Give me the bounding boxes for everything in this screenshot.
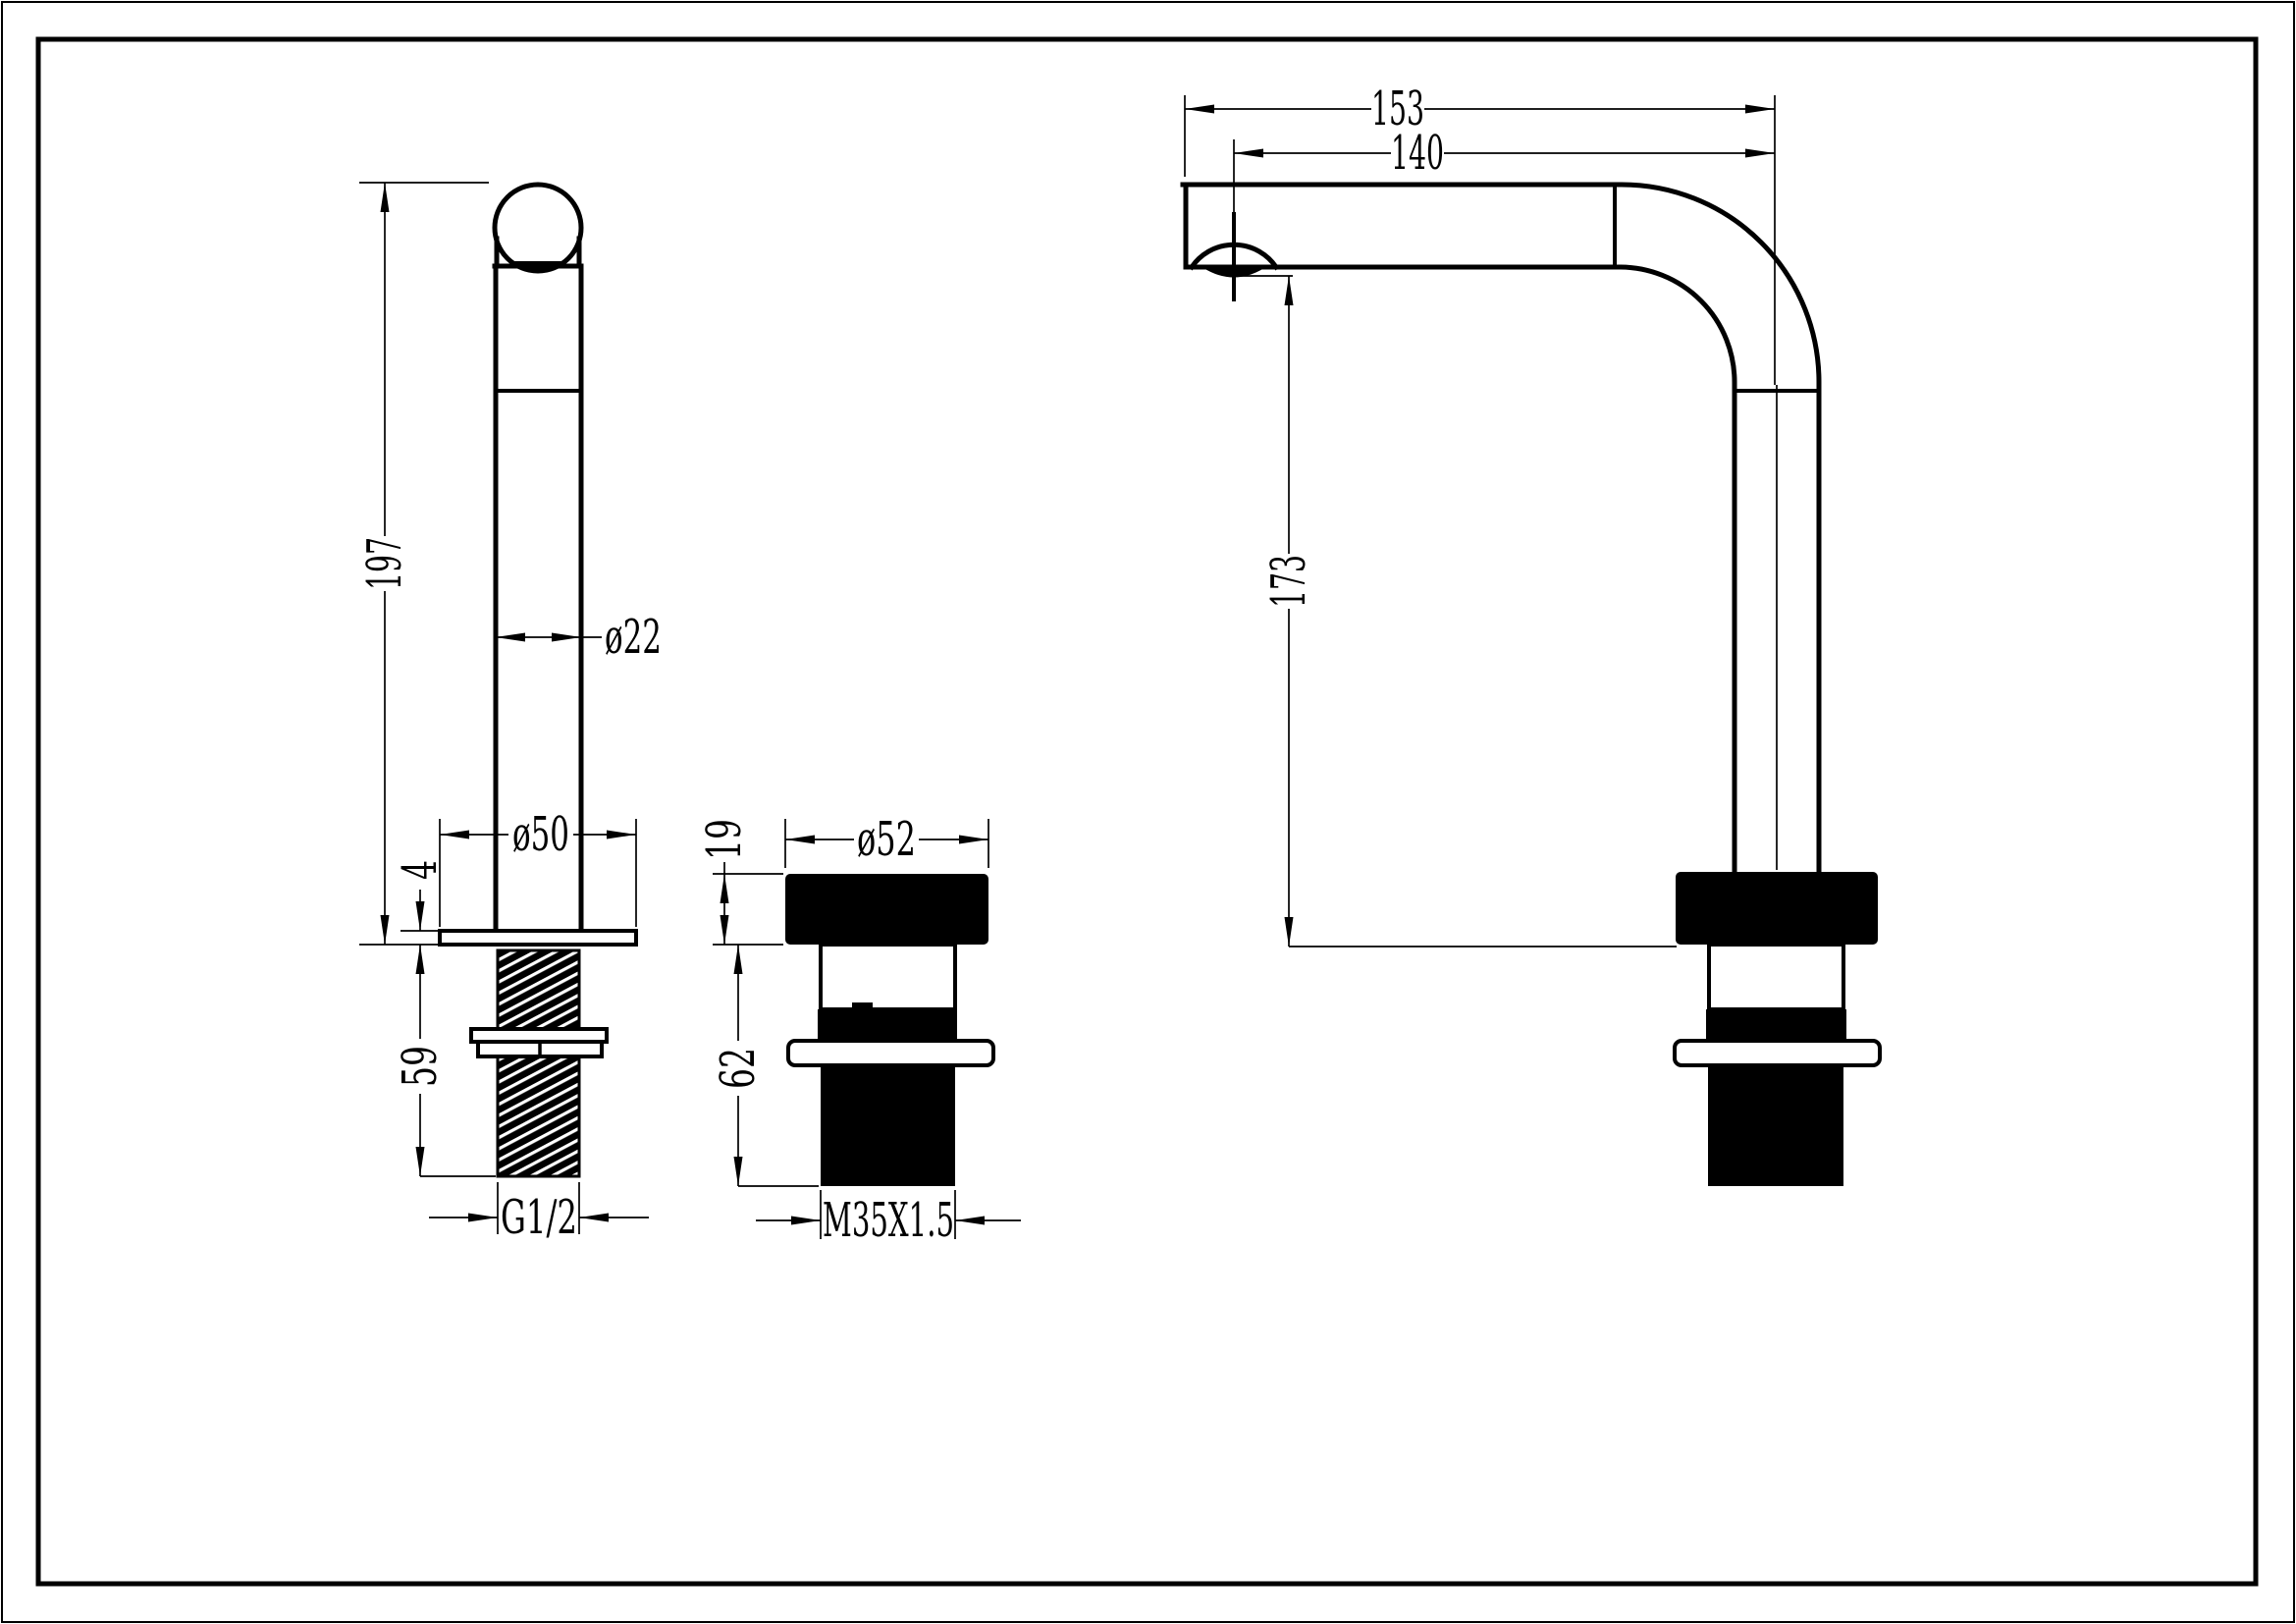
- arrowhead-left: [1234, 149, 1263, 158]
- arrowhead-up: [416, 945, 425, 974]
- dim-stem-diameter-text: ø22: [605, 610, 662, 665]
- handle-shank-thread: [498, 950, 579, 1176]
- dim-reach-outlet-text: 140: [1391, 126, 1444, 181]
- spout-base-washer: [1675, 1041, 1880, 1065]
- faucet-technical-drawing: 197 ø22 ø50 4 59: [0, 0, 2296, 1624]
- dim-cap-height: 19: [697, 819, 783, 945]
- dim-handle-thread: G1/2: [429, 1182, 649, 1245]
- dim-handle-height-text: 197: [357, 537, 412, 590]
- dim-cap-diameter: ø52: [785, 812, 988, 868]
- dim-shank-length: 59: [393, 945, 496, 1176]
- dim-body-height-text: 62: [711, 1048, 766, 1089]
- arrowhead-right: [468, 1214, 498, 1222]
- arrowhead-left: [579, 1214, 609, 1222]
- spout-base-cap: [1676, 872, 1878, 945]
- border-frame: [2, 2, 2294, 1622]
- arrowhead-right: [959, 836, 988, 844]
- arrowhead-down: [416, 901, 425, 931]
- spout-base-body: [1709, 945, 1843, 1009]
- arrowhead-up: [734, 945, 743, 974]
- arrowhead-left: [785, 836, 815, 844]
- dim-reach-total: 153: [1185, 81, 1775, 385]
- arrowhead-down: [721, 915, 729, 945]
- arrowhead-down: [734, 1157, 743, 1186]
- dim-outlet-height-text: 173: [1261, 555, 1316, 608]
- base-thread-lower: [821, 1065, 955, 1186]
- handle-flange: [440, 931, 636, 945]
- dim-flange-thickness-text: 4: [393, 860, 448, 880]
- base-body: [821, 945, 955, 1009]
- arrowhead-up: [1285, 276, 1294, 305]
- spout-base-thread-upper: [1706, 1009, 1846, 1041]
- drawing-sheet: 197 ø22 ø50 4 59: [0, 0, 2296, 1624]
- base-body-notch: [852, 1002, 873, 1010]
- arrowhead-up: [381, 183, 390, 212]
- inner-border: [38, 39, 2256, 1584]
- arrowhead-left: [440, 831, 469, 839]
- outer-border: [2, 2, 2294, 1622]
- arrowhead-right: [1745, 105, 1775, 114]
- arrowhead-down: [381, 915, 390, 945]
- base-washer: [788, 1041, 993, 1065]
- dim-handle-thread-text: G1/2: [501, 1190, 577, 1245]
- handle-knob: [495, 185, 581, 271]
- dim-outlet-height: 173: [1239, 276, 1677, 947]
- arrowhead-right: [607, 831, 636, 839]
- view-handle: [440, 185, 636, 1176]
- arrowhead-left: [496, 633, 525, 642]
- arrowhead-down: [416, 1147, 425, 1176]
- view-spout-dims: 153 140 173: [1185, 81, 1775, 947]
- dim-flange-diameter-text: ø50: [512, 807, 569, 862]
- arrowhead-left: [955, 1217, 985, 1225]
- arrowhead-right: [1745, 149, 1775, 158]
- base-cap: [785, 874, 988, 945]
- spout-base-thread-lower: [1708, 1065, 1843, 1186]
- base-thread-upper: [818, 1009, 957, 1041]
- dim-reach-outlet: 140: [1234, 126, 1775, 221]
- dim-shank-length-text: 59: [393, 1046, 448, 1087]
- dim-base-thread-text: M35X1.5: [823, 1193, 954, 1248]
- dim-flange-diameter: ø50: [440, 807, 636, 927]
- view-base: [785, 874, 993, 1186]
- spout-outer-edge: [1183, 185, 1819, 872]
- arrowhead-up: [721, 874, 729, 903]
- arrowhead-right: [552, 633, 581, 642]
- dim-cap-height-text: 19: [697, 819, 752, 860]
- arrowhead-left: [1185, 105, 1214, 114]
- arrowhead-right: [791, 1217, 821, 1225]
- dim-cap-diameter-text: ø52: [857, 812, 916, 867]
- arrowhead-down: [1285, 917, 1294, 947]
- dim-base-thread: M35X1.5: [756, 1190, 1021, 1248]
